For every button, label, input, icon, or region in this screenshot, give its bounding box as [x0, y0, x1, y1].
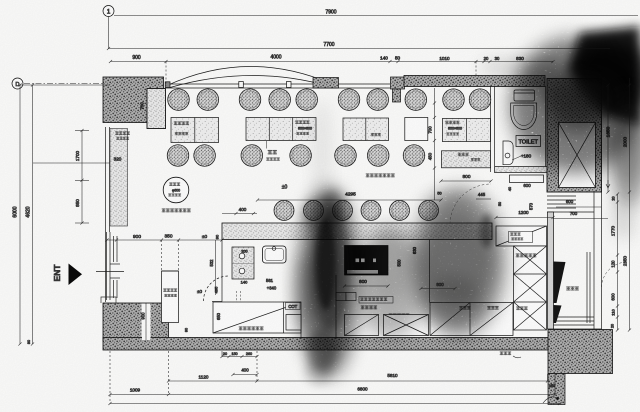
svg-text:800: 800 [436, 282, 444, 287]
